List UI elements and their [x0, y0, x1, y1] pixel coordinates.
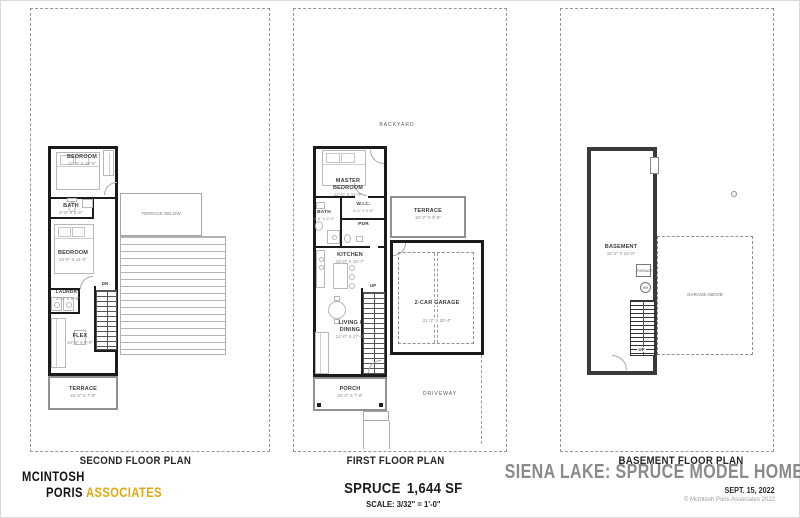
- room-name: TERRACE: [390, 208, 466, 215]
- room-label-pdr: PDR: [342, 222, 385, 228]
- room-dim: 21'-2" X 20'-4": [421, 318, 453, 323]
- logo-mcintosh: MCINTOSH: [22, 468, 100, 484]
- dining-table-icon: [328, 301, 346, 319]
- scale-text: SCALE: 3/32" = 1'-0": [366, 499, 440, 509]
- room-name: PORCH: [313, 386, 387, 393]
- pillow-icon: [72, 227, 85, 237]
- room-label-garage-above: GARAGE ABOVE: [657, 292, 753, 298]
- stair-label: UP: [630, 347, 653, 352]
- sheet-title: SIENA LAKE: SPRUCE MODEL HOME: [430, 461, 775, 484]
- pillow-icon: [341, 153, 355, 163]
- kitchen-island-icon: [333, 263, 348, 289]
- room-dim: 10'-6" X 11'-0": [43, 257, 103, 263]
- stool-icon: [349, 265, 355, 271]
- backyard-label: BACKYARD: [327, 122, 467, 128]
- stair-label-text: DN: [101, 281, 110, 286]
- room-name: FLEX: [60, 333, 100, 340]
- burner-icon: [319, 257, 324, 262]
- room-label-living: LIVING / DINING 12'-0" X 17'-8": [332, 320, 368, 340]
- room-dim: 5'-0" X 5'-6": [48, 296, 88, 302]
- room-label-terrace-below: TERRACE BELOW: [120, 211, 202, 217]
- room-dim: 15'-2" X 7'-8": [313, 393, 387, 399]
- room-label-master: MASTER BEDROOM 12'-0" X 12'-6": [328, 178, 368, 198]
- pillow-icon: [58, 227, 71, 237]
- burner-icon: [319, 265, 324, 270]
- room-name: TERRACE BELOW: [120, 211, 202, 217]
- stair-label-text: UP: [369, 283, 377, 288]
- room-dim: 12'-2" X 34'-0": [589, 251, 653, 257]
- chair-icon: [334, 296, 340, 301]
- sink-icon: [356, 236, 363, 242]
- walkway-line: [363, 421, 364, 449]
- driveway-edge-dash: [481, 355, 482, 444]
- sofa-line: [320, 333, 321, 373]
- washer-drum: [54, 302, 60, 308]
- stair-label-text: UP: [637, 347, 645, 352]
- logo-line2b-text: ASSOCIATES: [86, 484, 162, 500]
- wall-segment: [342, 218, 385, 220]
- kitchen-counter-icon: [316, 250, 325, 288]
- room-name: PDR: [342, 222, 385, 228]
- room-label-bedroom1: BEDROOM 12'-0" X 10'-6": [52, 154, 112, 167]
- wall-segment: [50, 312, 80, 314]
- logo-line2a-text: PORIS: [46, 484, 83, 500]
- sheet-date-text: SEPT. 15, 2022: [725, 486, 775, 495]
- furnace-label: FURNACE: [637, 269, 650, 273]
- room-dim: 16'-2" X 9'-8": [390, 215, 466, 221]
- room-label-porch: PORCH 15'-2" X 7'-8": [313, 386, 387, 399]
- room-label-basement: BASEMENT 12'-2" X 34'-0": [589, 244, 653, 257]
- room-label-bath: BATH 9'-6" X 5'-0": [48, 203, 94, 216]
- sheet-date: SEPT. 15, 2022: [575, 486, 775, 495]
- room-dim: 12'-0" X 12'-6": [328, 192, 368, 198]
- room-dim: 16'-2" X 7'-8": [48, 393, 118, 399]
- room-name: BEDROOM: [43, 250, 103, 257]
- model-name-text: SPRUCE: [344, 480, 401, 497]
- sofa-line: [56, 319, 57, 367]
- bed-line: [323, 164, 365, 165]
- bed-icon: [54, 224, 94, 274]
- room-name: TERRACE: [48, 386, 118, 393]
- water-heater-label: WH: [641, 286, 650, 290]
- stair-label: UP: [361, 283, 385, 288]
- wall-segment: [378, 246, 385, 248]
- room-dim: 10'-0" X 10'-7": [330, 259, 370, 265]
- dryer-drum: [66, 302, 72, 308]
- egress-window-icon: [650, 157, 659, 174]
- porch-step: [363, 411, 389, 421]
- stair-rail: [107, 291, 108, 349]
- room-label-bath: BATH 8'-6" X 5'-0": [308, 210, 340, 221]
- room-name: LIVING / DINING: [336, 320, 364, 334]
- room-name: KITCHEN: [330, 252, 370, 259]
- room-dim: 9'-6" X 5'-0": [48, 210, 94, 216]
- water-heater-icon: WH: [640, 282, 651, 293]
- toilet-icon: [315, 221, 323, 231]
- room-label-bedroom2: BEDROOM 10'-6" X 11'-0": [43, 250, 103, 263]
- shower-icon: [327, 230, 340, 244]
- sheet-title-text: SIENA LAKE: SPRUCE MODEL HOME: [505, 461, 800, 484]
- room-name: BASEMENT: [589, 244, 653, 251]
- room-dim: 10'-6" X 9'-0": [60, 340, 100, 346]
- room-dim: 8'-6" X 5'-0": [308, 216, 340, 221]
- room-name: MASTER BEDROOM: [331, 178, 365, 192]
- wall-segment: [50, 217, 94, 219]
- logo-poris-associates: PORIS ASSOCIATES: [46, 484, 191, 500]
- room-label-terrace: TERRACE 16'-2" X 9'-8": [390, 208, 466, 221]
- room-name: GARAGE ABOVE: [657, 292, 753, 298]
- room-name: BATH: [48, 203, 94, 210]
- wall-segment: [342, 246, 370, 248]
- room-name: 2-CAR GARAGE: [413, 300, 462, 306]
- deck-stripes: [120, 236, 226, 355]
- plan-title-text: SECOND FLOOR PLAN: [79, 455, 191, 467]
- room-label-garage: 2-CAR GARAGE 21'-2" X 20'-4": [390, 291, 484, 327]
- bed-line: [55, 238, 93, 239]
- room-dim: 5'-0" X 5'-8": [342, 208, 385, 213]
- scale-note: SCALE: 3/32" = 1'-0": [303, 499, 503, 509]
- wall-segment: [94, 350, 116, 352]
- stair-label: DN: [94, 281, 116, 286]
- driveway-label: DRIVEWAY: [395, 391, 485, 397]
- room-label-terrace: TERRACE 16'-2" X 7'-8": [48, 386, 118, 399]
- sink-icon: [316, 202, 325, 209]
- site-marker-icon: [731, 191, 737, 197]
- shower-drain: [332, 235, 337, 240]
- copyright-note: © McIntosh Poris Associates 2022: [575, 497, 775, 503]
- sofa-icon: [315, 332, 329, 374]
- room-label-laundry: LAUNDRY 5'-0" X 5'-6": [48, 290, 88, 302]
- toilet-icon: [344, 234, 351, 243]
- porch-post: [379, 403, 383, 407]
- stool-icon: [349, 283, 355, 289]
- room-dim: 12'-0" X 17'-8": [332, 334, 368, 340]
- pillow-icon: [326, 153, 340, 163]
- porch-post: [317, 403, 321, 407]
- furnace-icon: FURNACE: [636, 264, 651, 277]
- wall-segment: [368, 196, 385, 198]
- walkway-line: [389, 421, 390, 449]
- room-dim: 12'-0" X 10'-6": [52, 161, 112, 167]
- stool-icon: [349, 274, 355, 280]
- drawing-sheet: DN BEDROOM 12'-0" X 10'-6" BATH 9'-6" X …: [0, 0, 800, 518]
- logo-line1-text: MCINTOSH: [22, 468, 85, 484]
- second-floor-plan-title: SECOND FLOOR PLAN: [35, 455, 235, 467]
- room-label-flex: FLEX 10'-6" X 9'-0": [60, 333, 100, 346]
- room-name: BEDROOM: [52, 154, 112, 161]
- room-label-kitchen: KITCHEN 10'-0" X 10'-7": [330, 252, 370, 265]
- room-label-wic: W.I.C. 5'-0" X 5'-8": [342, 202, 385, 213]
- wall-segment: [315, 246, 340, 248]
- copyright-text: © McIntosh Poris Associates 2022: [684, 497, 775, 503]
